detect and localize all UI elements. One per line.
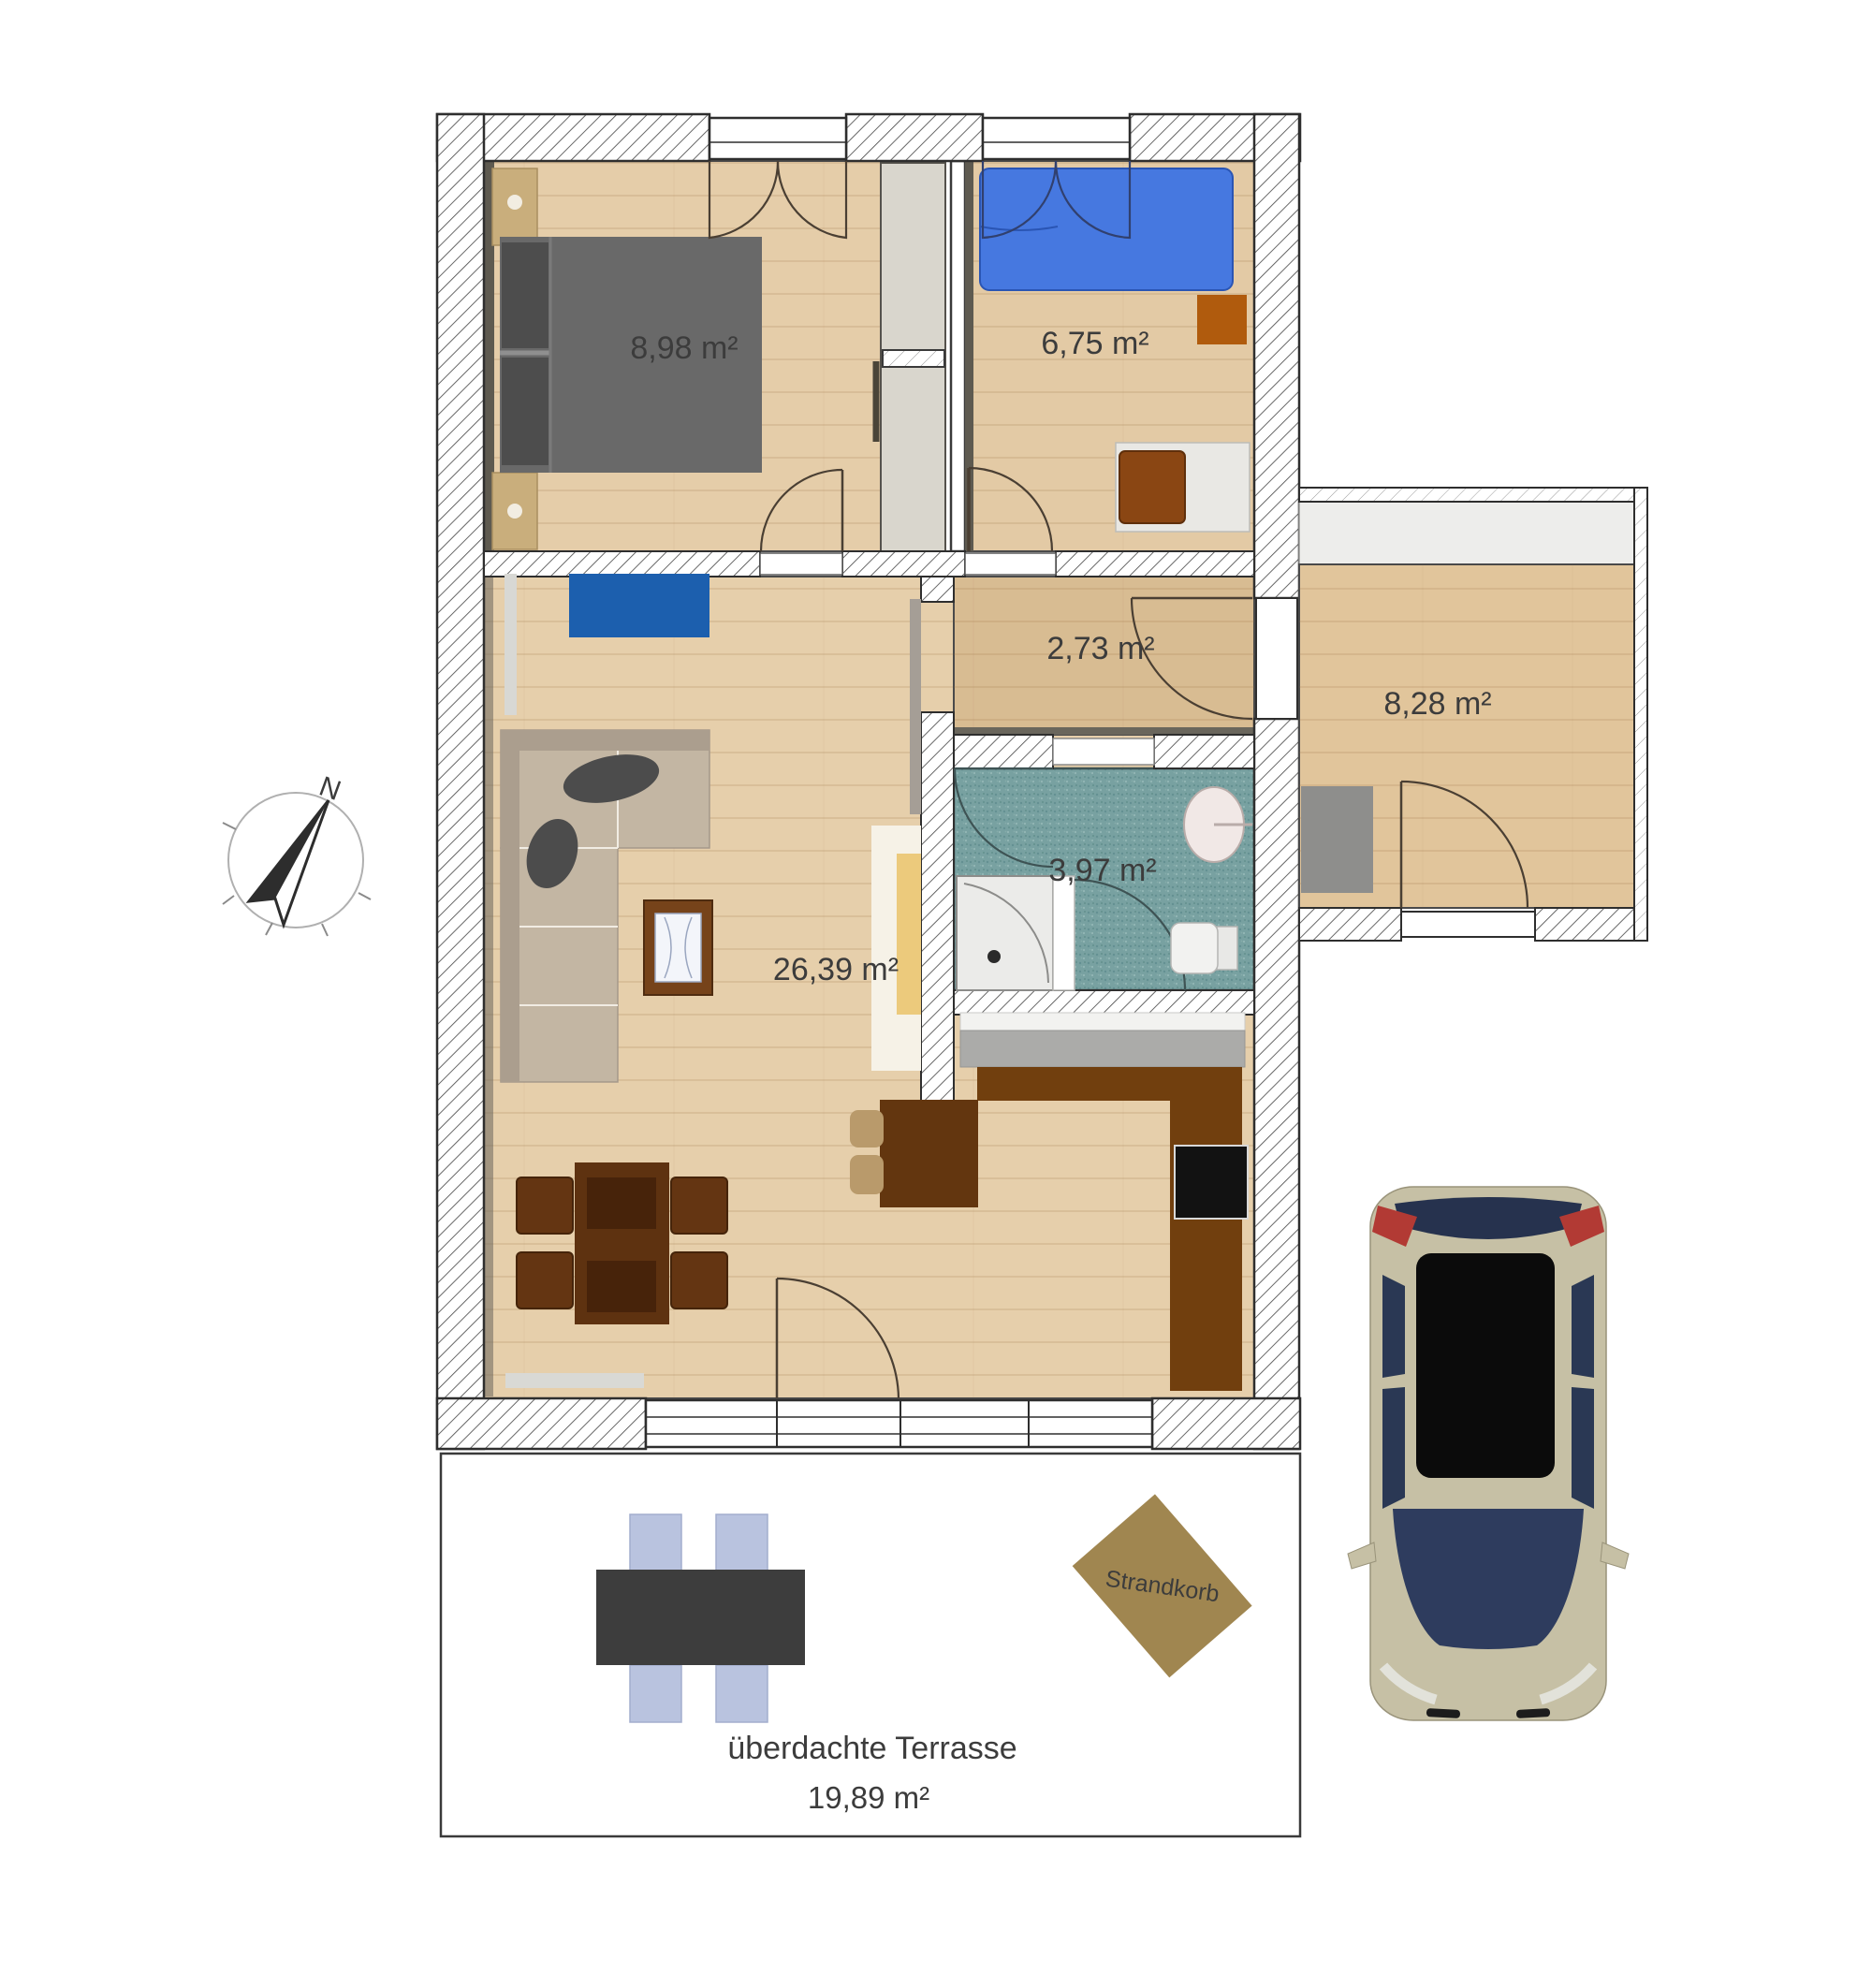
svg-text:3,97 m²: 3,97 m² [1048,853,1156,888]
svg-text:6,75 m²: 6,75 m² [1041,326,1148,361]
svg-text:19,89 m²: 19,89 m² [808,1780,929,1815]
svg-text:2,73 m²: 2,73 m² [1046,631,1154,666]
svg-text:8,28 m²: 8,28 m² [1383,686,1491,722]
svg-text:überdachte Terrasse: überdachte Terrasse [727,1731,1016,1766]
svg-text:26,39 m²: 26,39 m² [773,952,899,987]
svg-text:8,98 m²: 8,98 m² [630,330,738,366]
